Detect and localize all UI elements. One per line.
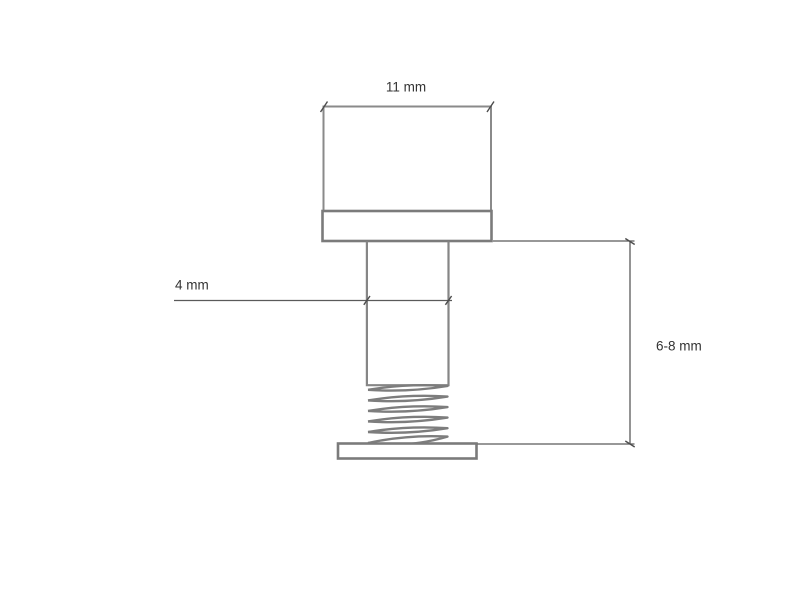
svg-text:6-8 mm: 6-8 mm: [656, 339, 702, 354]
svg-text:11 mm: 11 mm: [386, 80, 426, 95]
svg-text:4 mm: 4 mm: [175, 278, 209, 293]
